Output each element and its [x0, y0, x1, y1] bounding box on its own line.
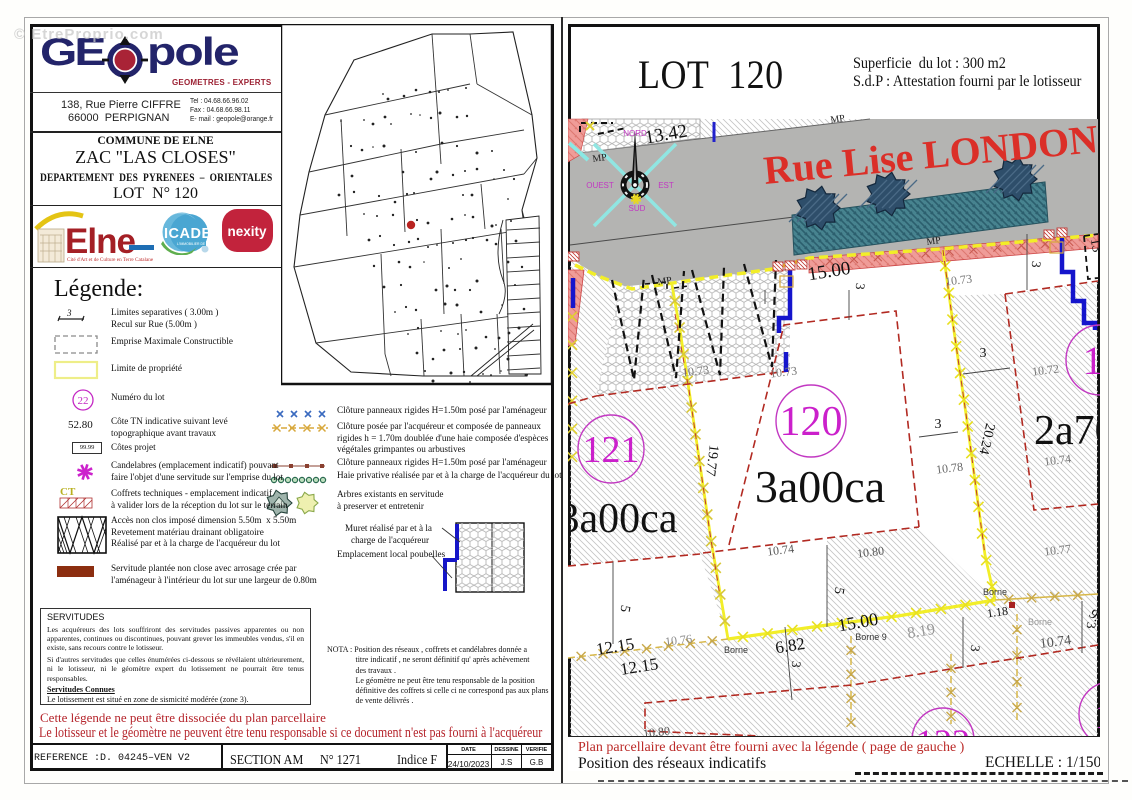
svg-text:EST: EST [658, 181, 674, 190]
svg-text:MP: MP [830, 113, 846, 126]
svg-text:2a70ca: 2a70ca [1034, 408, 1100, 454]
svg-text:3: 3 [968, 645, 984, 653]
svg-text:3: 3 [980, 346, 987, 361]
svg-text:1: 1 [1095, 696, 1100, 736]
svg-text:120: 120 [780, 399, 843, 445]
svg-text:MP: MP [657, 275, 673, 288]
svg-text:3a00ca: 3a00ca [755, 461, 885, 512]
svg-text:Borne: Borne [724, 645, 748, 655]
svg-text:10.80: 10.80 [642, 723, 671, 736]
svg-text:Borne 9: Borne 9 [855, 632, 887, 642]
svg-text:Borne: Borne [1028, 617, 1052, 627]
svg-text:3: 3 [935, 417, 942, 432]
svg-text:OUEST: OUEST [586, 181, 614, 190]
svg-text:3: 3 [789, 661, 805, 669]
svg-text:SUD: SUD [629, 204, 646, 213]
svg-text:MP: MP [926, 235, 942, 248]
svg-text:11: 11 [1083, 338, 1100, 383]
svg-text:3a00ca: 3a00ca [568, 496, 678, 542]
svg-text:Borne: Borne [983, 587, 1007, 597]
svg-text:3: 3 [1029, 261, 1045, 269]
svg-text:MP: MP [592, 152, 608, 165]
svg-text:3: 3 [853, 283, 869, 291]
svg-text:122: 122 [916, 722, 970, 736]
svg-text:1.18: 1.18 [986, 604, 1009, 621]
svg-text:121: 121 [583, 429, 640, 471]
svg-text:3: 3 [1084, 622, 1100, 630]
